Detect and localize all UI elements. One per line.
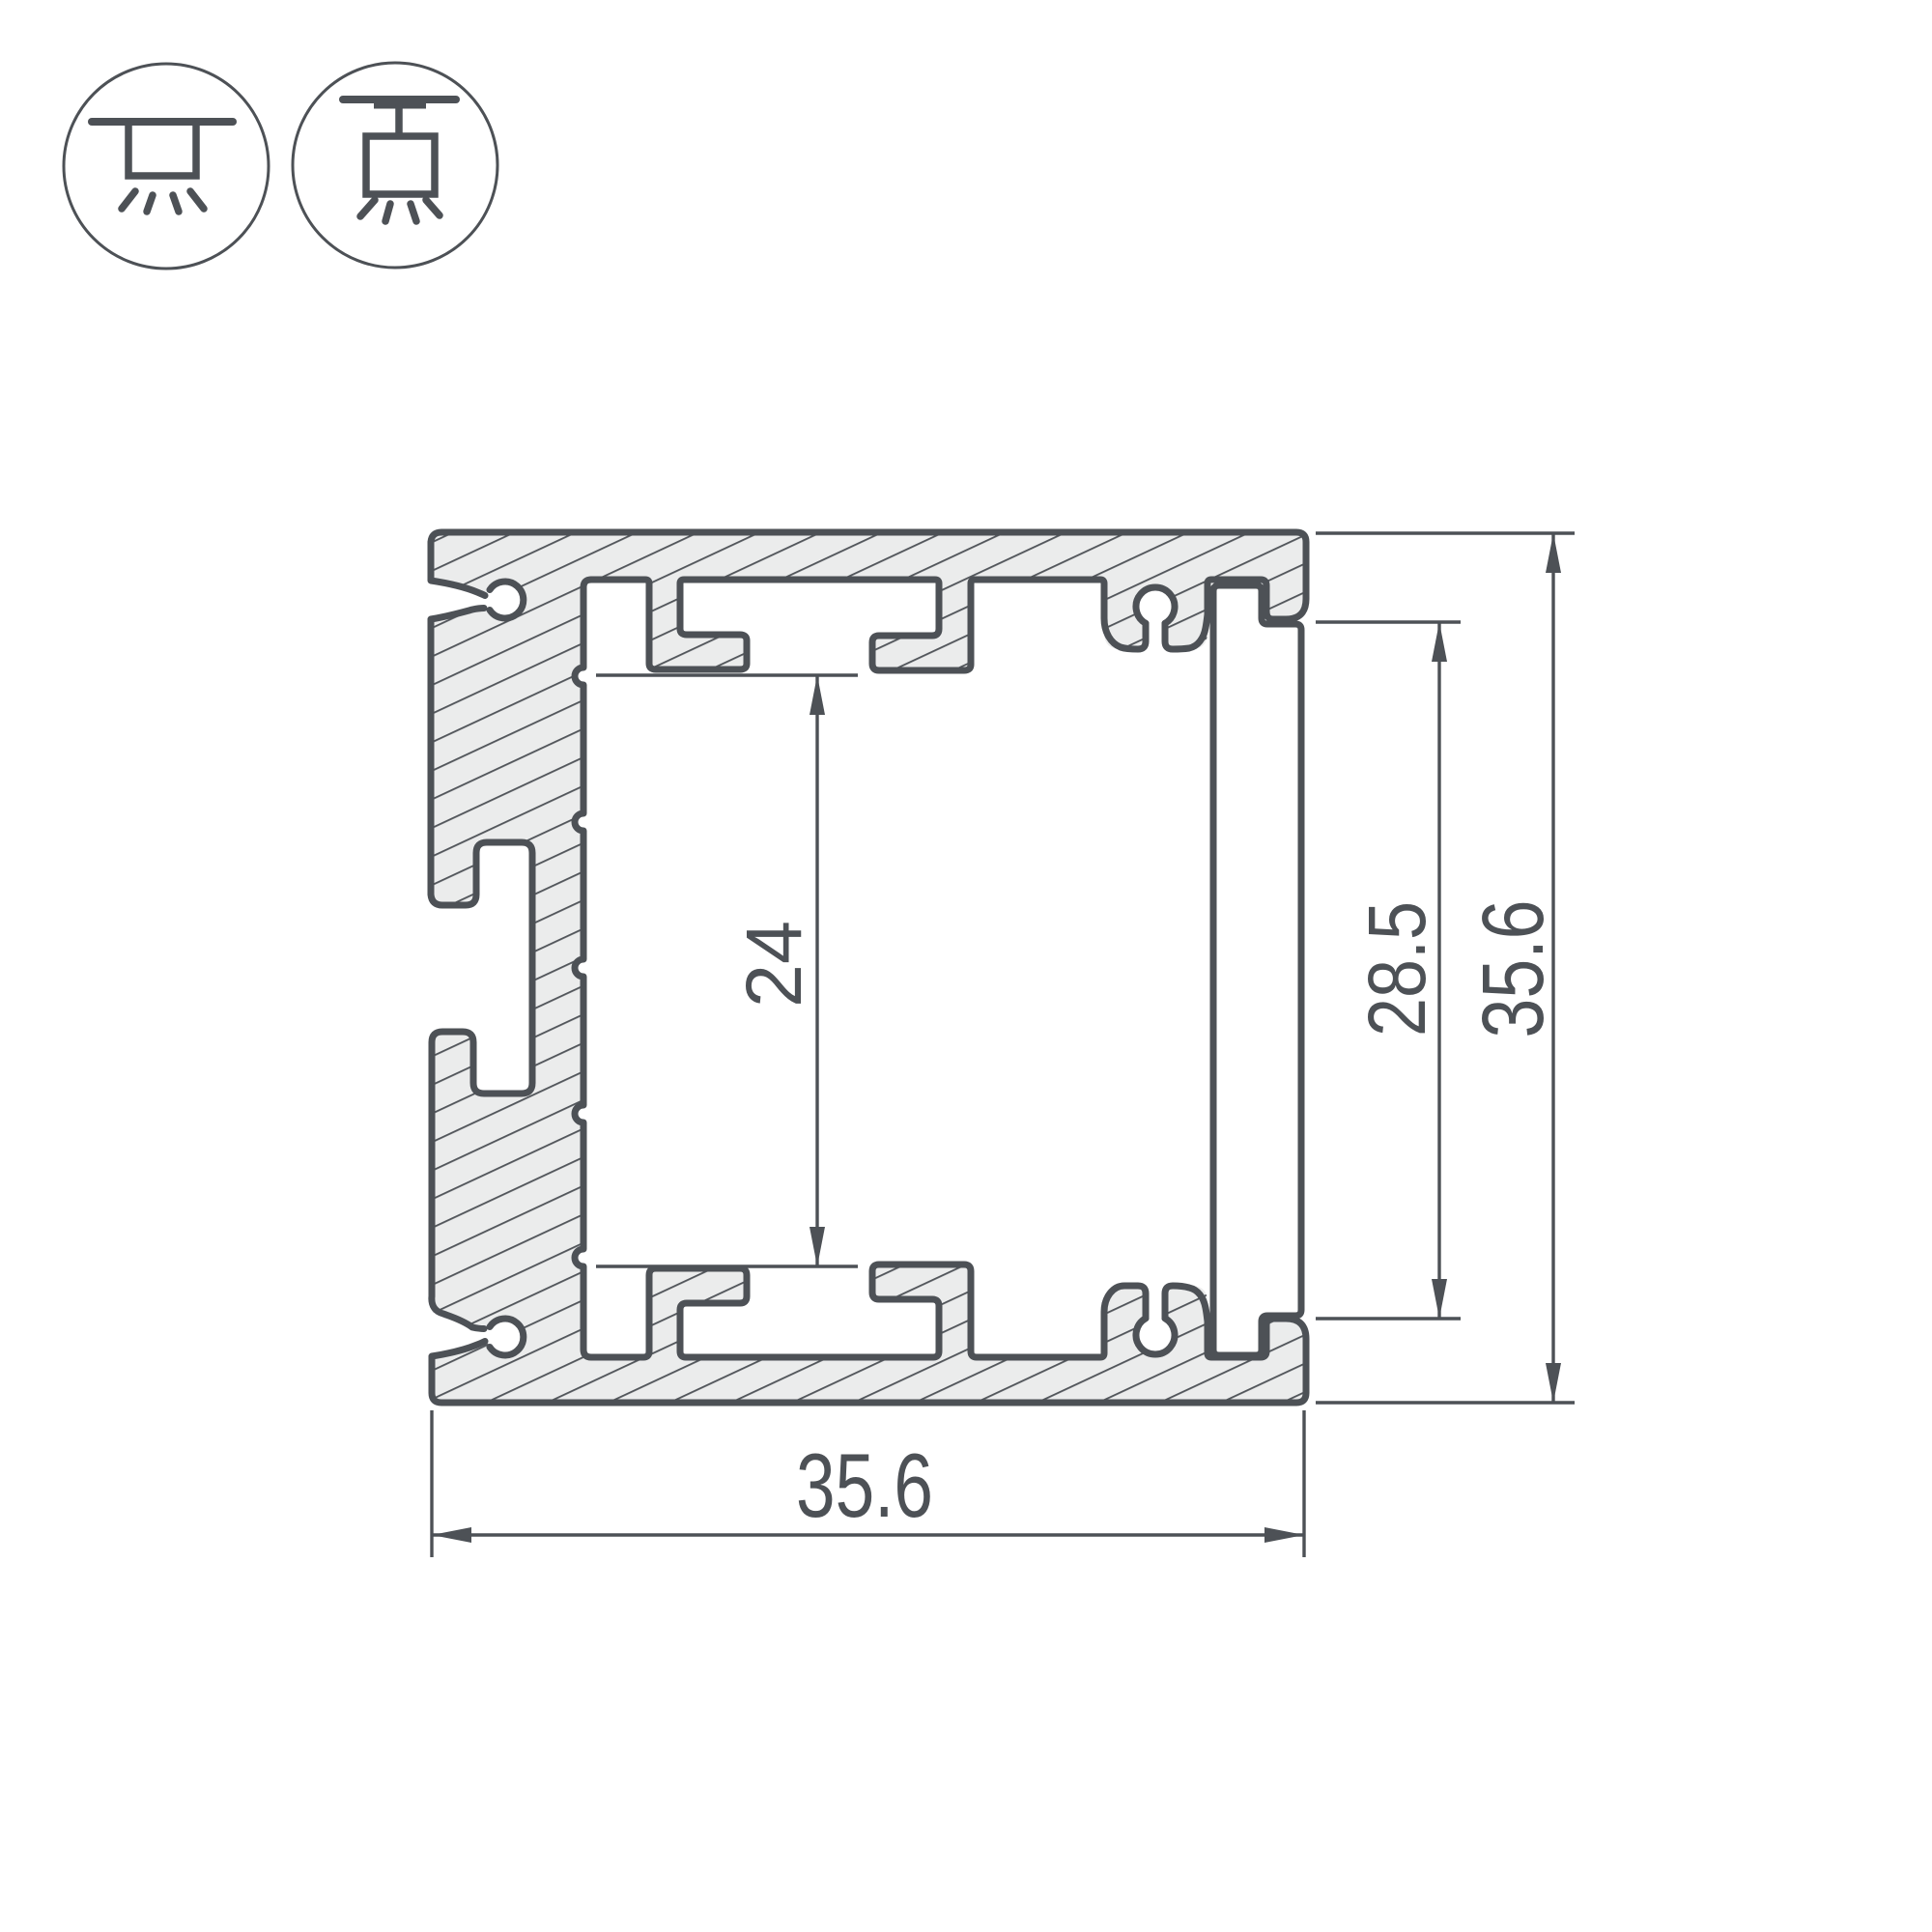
svg-text:35.6: 35.6 [1465, 900, 1562, 1038]
svg-text:35.6: 35.6 [796, 1435, 933, 1536]
svg-text:24: 24 [730, 921, 818, 1008]
svg-text:28.5: 28.5 [1351, 901, 1442, 1037]
